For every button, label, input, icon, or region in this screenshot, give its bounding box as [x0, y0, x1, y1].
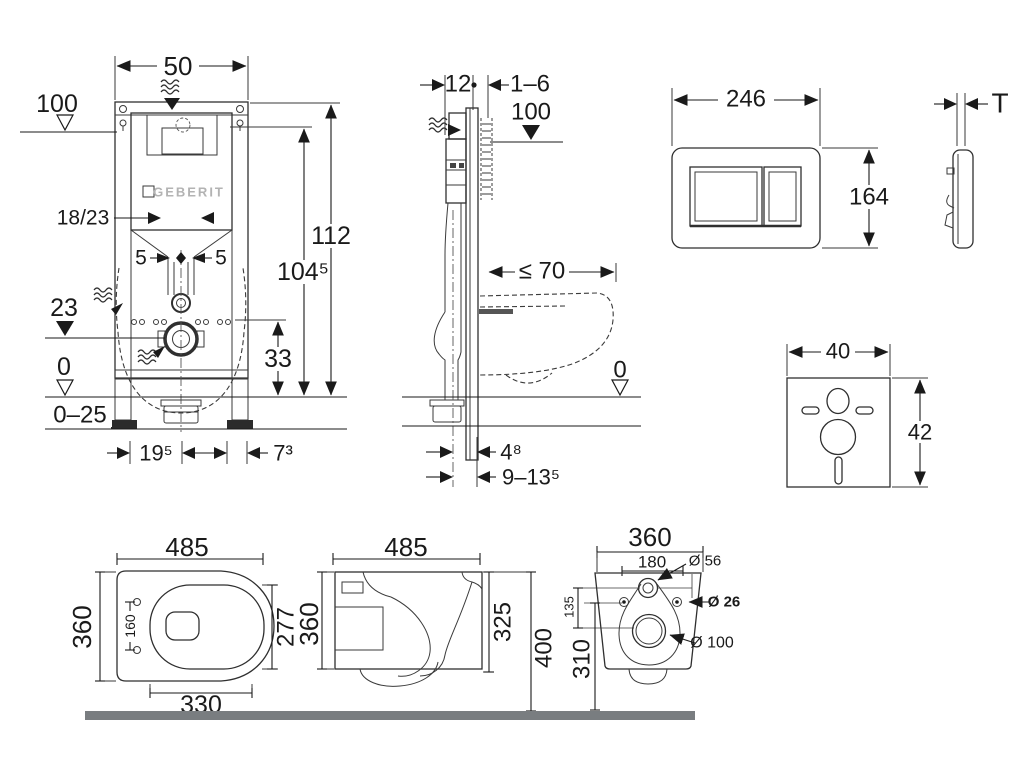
dim-install-height: 400: [531, 628, 558, 668]
outlet-hole: [633, 615, 666, 648]
dim-plate-width: 246: [726, 86, 766, 113]
dim-wall-gap: 1–6: [510, 71, 550, 98]
flush-plate-side-view: T: [934, 88, 1009, 249]
dim-inlet-diameter: Ø 56: [689, 553, 722, 570]
fixing-bolt: [479, 309, 513, 314]
inlet-hole: [639, 579, 658, 598]
brand-logo: GEBERIT: [153, 185, 225, 200]
flexible-connection-icon: [94, 288, 112, 302]
dim-plate-height-label: 164: [849, 184, 889, 211]
dim-plate-thickness: T: [991, 88, 1008, 119]
dim-total-height: 112: [311, 222, 351, 250]
bowl-outline-top: [117, 571, 274, 681]
floor-line: [85, 711, 695, 720]
half-flush-button: [764, 167, 801, 226]
dim-offset-right: 5: [215, 247, 227, 270]
dim-pad-height: 42: [908, 420, 932, 445]
dim-rim-height: 325: [490, 602, 517, 642]
dim-floor-range: 0–25: [53, 402, 106, 429]
dim-frame-width: 50: [164, 51, 193, 81]
bowl-outline-back: [595, 573, 701, 669]
dim-outlet-axis-back: 310: [569, 639, 596, 679]
flush-plate-profile: [953, 150, 973, 248]
dim-supply-level-side: 100: [511, 99, 551, 126]
dim-zero-level: 0: [57, 353, 71, 381]
frame-side-view: 12 1–6: [402, 71, 641, 490]
water-supply-icon: [429, 118, 447, 132]
frame-foot-left: [111, 420, 137, 429]
dim-inlet-axis: 135: [562, 596, 577, 618]
dim-supply-level: 100: [36, 90, 78, 118]
installation-drawing: 50 GEBERIT: [0, 0, 1024, 758]
dim-foot-right: 7³: [273, 441, 293, 466]
dim-bowl-width-back: 360: [628, 522, 671, 552]
full-flush-button: [690, 167, 762, 226]
dim-hinge-spacing: 160: [122, 614, 138, 638]
dim-frame-depth: 12: [445, 71, 472, 98]
dim-offset-left: 5: [135, 247, 147, 270]
water-supply-icon: [161, 80, 179, 94]
dim-outlet-diameter: Ø 100: [690, 635, 734, 652]
frame-foot-right: [227, 420, 253, 429]
mounting-frame: [115, 102, 248, 378]
bowl-back-view: 360 180 Ø 56 Ø 26 Ø 100 135: [562, 522, 741, 710]
dim-bowl-width-top: 360: [67, 605, 97, 648]
dim-foot-left: 19⁵: [139, 441, 173, 466]
dim-outlet-offset: 4⁸: [500, 440, 522, 465]
bowl-top-view: 485 160 360 277 330: [67, 532, 300, 719]
flush-plate-front-view: 246 164: [672, 86, 895, 249]
dim-outlet-level: 23: [50, 294, 78, 322]
sound-insulation-pad: [787, 378, 890, 487]
sound-insulation-pad-view: 40 42: [787, 339, 937, 488]
bowl-side-view: 485 360 325 400: [294, 532, 558, 711]
dim-bowl-length: 485: [165, 532, 208, 562]
dim-bend: 18/23: [57, 207, 110, 230]
dim-hole-diameter: Ø 26: [708, 594, 741, 611]
dim-pad-width: 40: [826, 339, 850, 364]
frame-front-view: 50 GEBERIT: [20, 51, 353, 466]
seat-opening: [150, 585, 264, 669]
dim-outlet-axis: 33: [264, 345, 292, 373]
dim-bowl-length-side: 485: [384, 532, 427, 562]
drain-socket: [433, 406, 461, 422]
technical-drawing-page: 50 GEBERIT: [0, 0, 1024, 758]
dim-hole-spacing: 180: [638, 553, 666, 572]
dim-plate-height: 104⁵: [277, 258, 329, 286]
frame-rail-side: [466, 108, 478, 460]
dim-bowl-depth: ≤ 70: [519, 258, 566, 285]
dim-outlet-range: 9–13⁵: [502, 465, 560, 490]
inspection-window: [147, 115, 217, 155]
flush-plate: [672, 148, 820, 248]
bowl-outline-dashed: [480, 293, 613, 375]
bowl-outline-side: [335, 572, 482, 669]
dim-bowl-height-side: 360: [294, 602, 324, 645]
